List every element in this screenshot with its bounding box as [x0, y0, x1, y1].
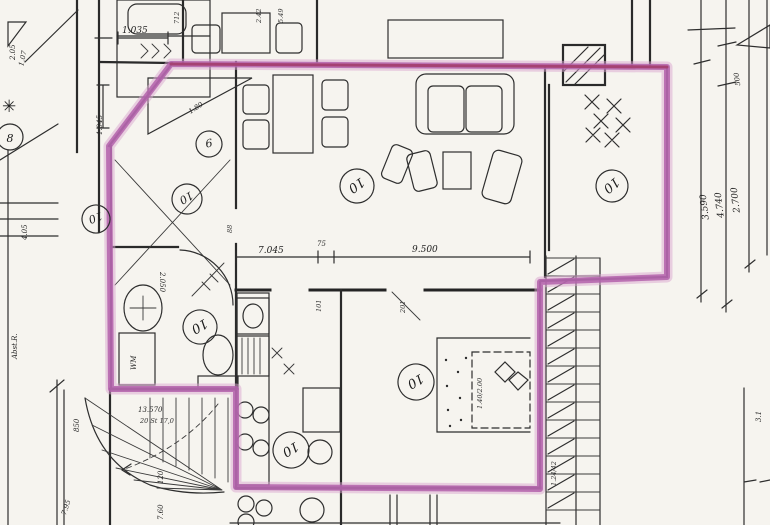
apartment-highlight-outline — [109, 64, 667, 489]
room-circle: 10 — [177, 304, 223, 350]
kitchen-table — [303, 388, 340, 432]
dim-door-88: 88 — [226, 225, 234, 233]
walk-line — [122, 404, 218, 470]
dim-door-101: 101 — [315, 300, 323, 312]
dim-stairs-795: 7.95 — [60, 498, 73, 516]
armchair — [406, 150, 438, 193]
hall: 88 — [115, 160, 234, 285]
dim-living: 7.045 — [258, 246, 284, 256]
room-circle: 10 — [391, 357, 440, 406]
toilet-icon — [203, 335, 233, 375]
dim-tl-b: 1.07 — [17, 49, 28, 66]
dim-right-stairs: 1.24/42 — [550, 461, 558, 486]
small-triangle — [8, 22, 26, 46]
dim-left-note: Abst.R. — [11, 333, 19, 360]
room-circle: 10 — [333, 162, 380, 209]
pillows-icon — [495, 362, 528, 390]
dim-wing: 9.500 — [412, 245, 438, 255]
svg-text:9: 9 — [204, 136, 213, 150]
svg-text:10: 10 — [87, 209, 105, 226]
dim-right-2700: 2.700 — [730, 186, 743, 214]
chair — [243, 120, 269, 149]
shower-icon — [192, 263, 224, 296]
counter — [237, 293, 269, 485]
room-circle-nine: 9 — [194, 129, 224, 159]
dim-242: 2.42 — [255, 9, 263, 24]
dim-549: 5.49 — [277, 9, 285, 23]
dim-bath: 2.050 — [158, 271, 166, 293]
dim-stairs-run: 13.570 — [138, 406, 163, 414]
svg-text:10: 10 — [600, 174, 622, 196]
sink-icon — [243, 304, 263, 328]
dim-stairs-120: 120 — [157, 470, 165, 484]
dim-right-4740: 4.740 — [714, 191, 727, 219]
dim-closet: 1.80 — [187, 100, 205, 115]
dim-top-width: 1.035 — [122, 26, 148, 36]
asterisk-mark-icon: ✳ — [2, 97, 16, 117]
balcony-hatch-icon — [585, 95, 630, 147]
stairs-winder: 13.570 20 St 17,0 850 120 7.60 7.95 — [50, 380, 228, 525]
chair — [192, 25, 220, 53]
dim-gap: 75 — [317, 240, 326, 248]
switch-marks-icon — [272, 348, 294, 374]
dim-chains-left: 4.05 Abst.R. — [11, 224, 29, 360]
room-circle: 10 — [589, 163, 634, 208]
carpet-dots — [445, 357, 467, 427]
floor-plan-drawing: 1.80 2.05 1.07 ✳ 712 2.42 5.49 1.035 1.0… — [0, 0, 770, 525]
dim-top-jog: 1.045 — [96, 114, 104, 135]
room-circle-eight: 8 — [0, 124, 23, 150]
dim-chains-right: 500 2.700 4.740 3.590 3.1 — [688, 0, 770, 525]
svg-text:10: 10 — [345, 174, 367, 196]
svg-text:10: 10 — [188, 315, 210, 336]
north-triangle — [737, 25, 770, 48]
highlight-glow — [109, 64, 667, 489]
dim-712: 712 — [173, 12, 181, 24]
svg-text:10: 10 — [177, 189, 196, 207]
dim-bottom-right: 3.1 — [755, 411, 763, 422]
shower-arc — [180, 250, 233, 305]
dim-bed: 1.40/2.00 — [476, 378, 484, 409]
stairs-right: 1.24/42 — [546, 256, 600, 525]
bedroom: 1.40/2.00 201 — [392, 292, 530, 432]
svg-text:10: 10 — [279, 438, 301, 459]
door-leaf — [392, 292, 420, 320]
chair — [322, 80, 348, 110]
dim-left-405: 4.05 — [21, 224, 29, 241]
bathroom: WM 2.050 — [119, 250, 238, 389]
dim-interior: 7.045 75 9.500 — [236, 240, 530, 263]
dining-table — [273, 75, 313, 153]
dim-stairs-760: 7.60 — [157, 504, 165, 520]
armchair — [481, 149, 524, 205]
rooms-below-outline — [238, 495, 437, 525]
chair — [308, 440, 332, 464]
chair — [243, 85, 269, 114]
label-wm: WM — [130, 355, 138, 370]
floor-plan-scan: 1.80 2.05 1.07 ✳ 712 2.42 5.49 1.035 1.0… — [0, 0, 770, 525]
chair — [322, 117, 348, 147]
balcony — [585, 95, 630, 147]
living-room — [243, 74, 523, 205]
dim-stairs-note: 20 St 17,0 — [139, 417, 174, 425]
chair — [276, 23, 302, 53]
coffee-table — [443, 152, 471, 189]
stove-icon — [237, 402, 269, 456]
dim-right-500: 500 — [733, 72, 743, 87]
dim-stairs-850: 850 — [73, 418, 81, 432]
coat-hooks-icon — [141, 44, 171, 58]
sofa — [416, 74, 514, 134]
armchair — [380, 143, 414, 185]
svg-text:8: 8 — [7, 132, 14, 145]
svg-text:10: 10 — [404, 370, 426, 391]
dim-right-3590: 3.590 — [699, 193, 712, 220]
sideboard — [388, 20, 503, 58]
room-circle: 10 — [167, 179, 208, 220]
door-swing-lines — [115, 160, 230, 285]
dim-tl-a: 2.05 — [9, 44, 17, 61]
